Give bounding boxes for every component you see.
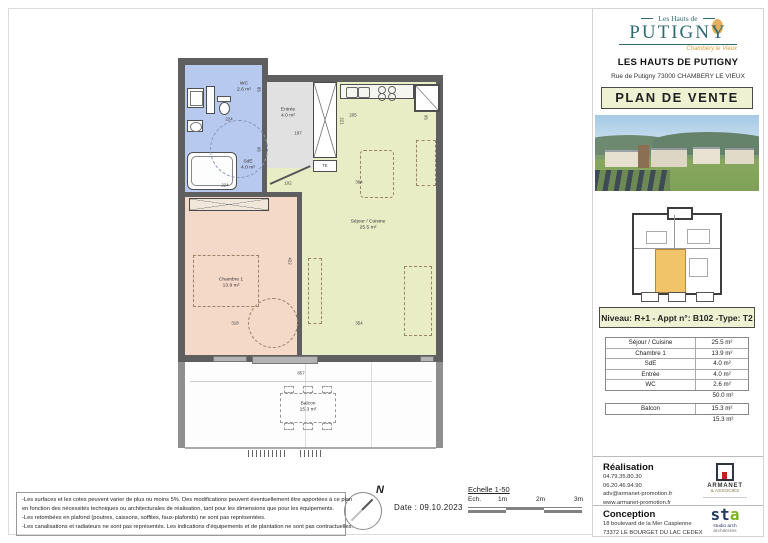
development-photo bbox=[595, 115, 759, 191]
wardrobe bbox=[189, 198, 269, 211]
table-row: SdE4.0 m² bbox=[606, 358, 748, 369]
program-address: Rue de Putigny 73000 CHAMBERY LE VIEUX bbox=[593, 73, 763, 80]
north-label: N bbox=[376, 484, 384, 496]
cote: 224 bbox=[221, 184, 228, 188]
placard-closet bbox=[313, 82, 337, 158]
bathroom-cabinet bbox=[206, 86, 215, 114]
label-sde: SdE4.0 m² bbox=[232, 159, 265, 171]
label-balcon: Balcon15.3 m² bbox=[288, 401, 329, 413]
balcony-chair bbox=[303, 386, 313, 393]
railing-hatch bbox=[248, 450, 286, 457]
email[interactable]: adv@armanet-promotion.fr bbox=[603, 490, 699, 499]
plan-de-vente-page: TE WC2. bbox=[0, 0, 768, 543]
table-balcony-total-row: 15.3 m² bbox=[605, 415, 749, 425]
wall-mid bbox=[185, 192, 302, 197]
label-chambre: Chambre 113.9 m² bbox=[211, 277, 252, 289]
balcony-joint bbox=[371, 362, 372, 448]
armanet-logo-icon bbox=[716, 463, 734, 481]
kitchen-sink bbox=[346, 87, 358, 98]
scale-prefix: Ech. bbox=[468, 496, 481, 503]
washing-machine-drum bbox=[190, 91, 203, 106]
cote: 422 bbox=[287, 257, 291, 264]
room-entree bbox=[267, 82, 313, 168]
scale-bar bbox=[468, 507, 582, 513]
program-title: LES HAUTS DE PUTIGNY bbox=[593, 57, 763, 68]
scale-tick-label: 3m bbox=[574, 496, 583, 503]
balcony-edge bbox=[185, 447, 436, 449]
logo-subtitle: Chambéry le Vieux bbox=[619, 46, 737, 52]
logo-main-text: PUTIGN bbox=[629, 22, 711, 43]
balcony-chair bbox=[322, 423, 332, 430]
scale-tick-label: 2m bbox=[536, 496, 545, 503]
cote: 354 bbox=[355, 322, 362, 326]
cote: 65 bbox=[256, 147, 260, 152]
brand-logo: Les Hauts de PUTIGNY Chambéry le Vieux bbox=[593, 14, 763, 52]
website[interactable]: www.armanet-promotion.fr bbox=[603, 499, 699, 508]
balcony-chair bbox=[303, 423, 313, 430]
balcony-chair bbox=[284, 423, 294, 430]
table-total-row: 50.0 m² bbox=[605, 391, 749, 401]
cote: 224 bbox=[225, 118, 232, 122]
doc-type-label: PLAN DE VENTE bbox=[615, 90, 739, 105]
scale-block: Echelle 1-50 Ech. 1m 2m 3m bbox=[468, 485, 588, 513]
wall-left bbox=[178, 58, 185, 362]
table-row: Chambre 113.9 m² bbox=[606, 348, 748, 359]
te-label: TE bbox=[322, 163, 327, 171]
label-entree: Entrée4.0 m² bbox=[272, 107, 305, 119]
phone-number: 06.20.46.94.90 bbox=[603, 482, 699, 491]
cote: 65 bbox=[423, 115, 427, 120]
table-row-balcony: Balcon15.3 m² bbox=[606, 404, 748, 414]
stove-burner bbox=[388, 93, 396, 101]
area-table: Séjour / Cuisine25.5 m² Chambre 113.9 m²… bbox=[605, 337, 749, 424]
unit-info-label: Niveau: R+1 - Appt n°: B102 -Type: T2 bbox=[601, 313, 752, 323]
balcony-cote-line bbox=[190, 381, 432, 382]
wall-wc-entree bbox=[262, 65, 267, 192]
table-row: Séjour / Cuisine25.5 m² bbox=[606, 338, 748, 348]
table-row: Entrée4.0 m² bbox=[606, 369, 748, 380]
scale-tick-label: 1m bbox=[498, 496, 507, 503]
doc-type-box: PLAN DE VENTE bbox=[601, 87, 753, 109]
cote: 318 bbox=[231, 322, 238, 326]
dining-table bbox=[360, 150, 394, 198]
table-row: WC2.6 m² bbox=[606, 379, 748, 390]
cote: 221 bbox=[339, 117, 343, 124]
legal-line: -Les canalisations et radiateurs ne sont… bbox=[22, 523, 324, 532]
wall-right bbox=[436, 75, 443, 362]
scale-title: Echelle 1-50 bbox=[468, 485, 588, 494]
stove-burner bbox=[378, 93, 386, 101]
date-label: Date : 09.10.2023 bbox=[394, 503, 463, 512]
sofa bbox=[404, 266, 432, 336]
legal-line: en fonction des nécessités techniques ou… bbox=[22, 505, 324, 514]
wall-top-left bbox=[178, 58, 262, 65]
window-sill bbox=[420, 356, 434, 362]
tree-icon: Y bbox=[711, 23, 727, 42]
realisation-title: Réalisation bbox=[603, 462, 699, 473]
key-plan bbox=[632, 213, 722, 295]
cote: 364 bbox=[355, 181, 362, 185]
balcony-wall-left bbox=[178, 362, 185, 448]
sideboard bbox=[308, 258, 322, 324]
cote: 85 bbox=[256, 87, 260, 92]
cote: 187 bbox=[294, 132, 301, 136]
info-panel: Les Hauts de PUTIGNY Chambéry le Vieux L… bbox=[592, 8, 764, 537]
balcony-chair bbox=[322, 386, 332, 393]
wall-chambre-sejour bbox=[297, 197, 302, 355]
cote: 857 bbox=[297, 372, 304, 376]
contacts-box: Réalisation 04.79.35.80.30 06.20.46.94.9… bbox=[593, 456, 763, 537]
cote: 205 bbox=[349, 114, 356, 118]
wall-top bbox=[268, 75, 443, 82]
compass-needle-icon bbox=[351, 499, 374, 522]
rug-circle bbox=[248, 298, 298, 348]
toilet-bowl bbox=[219, 102, 230, 115]
cote: 102 bbox=[284, 182, 291, 186]
window-sill-slider bbox=[252, 356, 318, 364]
conception-title: Conception bbox=[603, 509, 713, 520]
unit-info-box: Niveau: R+1 - Appt n°: B102 -Type: T2 bbox=[599, 307, 755, 328]
legal-notes: -Les surfaces et les cotes peuvent varie… bbox=[16, 492, 346, 536]
phone-number: 04.79.35.80.30 bbox=[603, 473, 699, 482]
duct-shaft bbox=[414, 84, 440, 112]
window-sill bbox=[213, 356, 247, 362]
balcony-wall-right bbox=[436, 362, 443, 448]
legal-line: -Les surfaces et les cotes peuvent varie… bbox=[22, 496, 324, 505]
logo-rule bbox=[703, 18, 715, 19]
te-box: TE bbox=[313, 160, 337, 172]
logo-rule bbox=[641, 18, 653, 19]
armanet-logo: ARMANET & ASSOCIÉS bbox=[699, 463, 751, 498]
key-plan-unit-highlight bbox=[655, 249, 686, 293]
legal-line: -Les retombées en plafond (poutres, cais… bbox=[22, 514, 324, 523]
label-sejour: Séjour / Cuisine25.5 m² bbox=[343, 219, 392, 231]
address-line: 18 boulevard de la Mer Caspienne bbox=[603, 520, 713, 529]
washbasin-bowl bbox=[190, 122, 202, 132]
address-line: 73372 LE BOURGET DU LAC CEDEX bbox=[603, 529, 713, 538]
balcony-chair bbox=[284, 386, 294, 393]
sta-logo: sta studio arch architectes bbox=[699, 507, 751, 534]
kitchen-sink bbox=[358, 87, 370, 98]
railing-hatch bbox=[300, 450, 324, 457]
kitchen-cabinet-future bbox=[416, 140, 436, 186]
